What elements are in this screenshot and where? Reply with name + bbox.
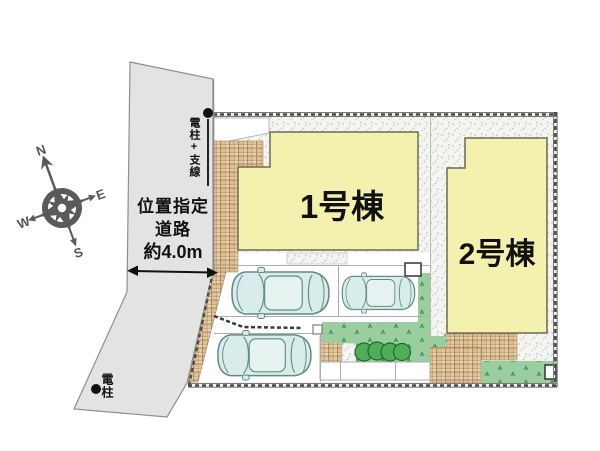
building-2-label: 2号棟 — [444, 229, 550, 273]
lawn-strip-center — [322, 322, 430, 343]
utility-box-1 — [405, 263, 421, 276]
porch-strip — [287, 253, 347, 264]
car-2 — [342, 273, 415, 313]
building-1-label: 1号棟 — [283, 180, 401, 228]
site-plan-scene: N E S W 位置指定 道路 約4.0m 電柱+支線 電柱 1号棟 2号棟 — [0, 0, 600, 451]
car-3 — [218, 331, 311, 380]
utility-pole-top-label: 電柱+支線 — [188, 117, 199, 193]
road-label-line-1: 位置指定 — [124, 195, 222, 218]
road-label-line-3: 約4.0m — [124, 241, 222, 264]
compass-s-label: S — [72, 244, 86, 261]
compass-rose: N E S W — [0, 128, 124, 276]
terrace-tiles-2 — [430, 347, 481, 383]
road-label: 位置指定 道路 約4.0m — [124, 195, 222, 264]
lawn-patch-divider — [430, 336, 447, 347]
shrub-row — [355, 342, 411, 361]
compass-e-label: E — [94, 186, 108, 203]
lawn-strip-vertical — [418, 273, 430, 322]
utility-pole-bottom-label: 電柱 — [101, 373, 113, 407]
compass-n-label: N — [34, 142, 48, 159]
compass-w-label: W — [15, 213, 32, 232]
gravel-patch — [342, 343, 356, 362]
utility-stalls — [320, 362, 430, 380]
utility-pole-top-dot — [203, 108, 213, 118]
car-1 — [232, 268, 329, 319]
utility-box-3 — [313, 325, 322, 334]
road-label-line-2: 道路 — [124, 218, 222, 241]
